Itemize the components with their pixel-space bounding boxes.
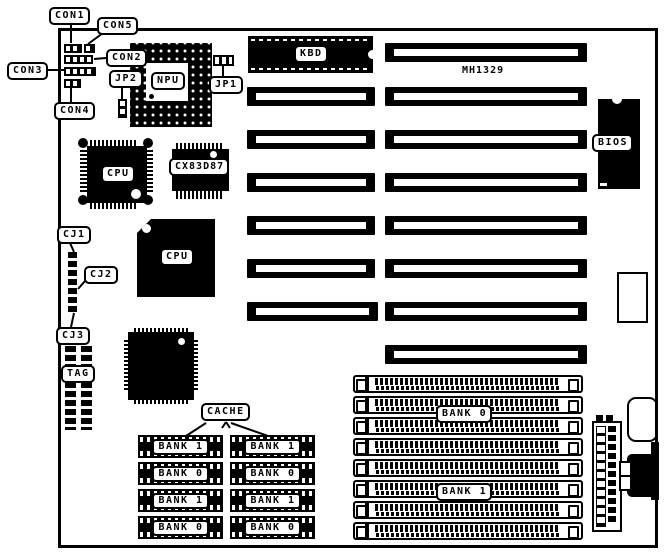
tag-socket-right [81,346,92,430]
pin1-mark [600,183,607,186]
con4-header [64,79,81,88]
simm-contacts [375,449,559,453]
simm-contacts [375,504,559,511]
cache-chip-label: BANK 1 [152,439,208,455]
simm-latch [356,442,367,455]
simm-socket [353,522,583,540]
simm-socket [353,459,583,477]
copro-pins-bottom [176,191,224,199]
con3-callout: CON3 [7,62,48,80]
isa-slot [247,259,375,278]
cache-chip: BANK 1 [138,489,223,512]
pin1-dot [210,151,217,158]
cj3-callout: CJ3 [56,327,90,345]
simm-contacts [375,441,559,448]
simm-latch [568,442,579,455]
bios-chip-label: BIOS [592,134,633,152]
cj-jumper-strip [68,252,77,313]
con2-header [64,55,93,64]
battery-outline [627,397,658,442]
power-pins-open [596,426,606,527]
simm-latch [568,505,579,518]
cpu-qfp-label: CPU [101,165,135,183]
con2-callout: CON2 [106,49,147,67]
chipset-body [128,332,194,400]
cache-chip-label: BANK 0 [152,466,208,482]
din-pin-stub [619,475,632,491]
simm-contacts [375,378,559,385]
simm-latch [356,463,367,476]
simm-bank1-label: BANK 1 [436,483,492,501]
simm-contacts [375,525,559,532]
cache-chip: BANK 1 [138,435,223,458]
simm-contacts [375,470,559,474]
simm-latch [568,484,579,497]
simm-latch [356,421,367,434]
cj1-callout: CJ1 [57,226,91,244]
kbd-notch [368,50,377,59]
isa-slot [385,259,587,278]
simm-contacts [375,462,559,469]
cache-chip-label: BANK 1 [244,439,300,455]
isa-slot [385,43,587,62]
simm-latch [356,400,367,413]
simm-latch [568,379,579,392]
pin1-dot [178,338,185,345]
cache-chip: BANK 1 [230,435,315,458]
isa-slot [385,173,587,192]
isa-slot [247,87,375,106]
power-pins-filled [608,426,616,525]
isa-slot [247,302,378,321]
isa-slot [247,173,375,192]
power-connector [592,421,622,532]
simm-contacts [375,386,559,390]
simm-socket [353,438,583,456]
cj2-callout: CJ2 [84,266,118,284]
cache-chip-label: BANK 0 [244,466,300,482]
tag-socket-left [65,346,76,430]
simm-latch [356,379,367,392]
simm-latch [568,463,579,476]
isa-slot [385,302,587,321]
simm-socket [353,375,583,393]
bios-notch [612,99,622,104]
cache-chip: BANK 0 [230,516,315,539]
con1-header [64,44,82,53]
npu-label: NPU [151,72,185,90]
cache-chip: BANK 1 [230,489,315,512]
isa-slot [247,130,375,149]
simm-bank0-label: BANK 0 [436,405,492,423]
socket-outline [617,272,648,323]
con1-callout: CON1 [49,7,90,25]
simm-socket [353,501,583,519]
con3-header [64,67,96,76]
jp2-callout: JP2 [109,70,143,88]
cache-chip-label: BANK 1 [244,493,300,509]
kbd-chip-label: KBD [294,45,328,63]
cache-chip-label: BANK 1 [152,493,208,509]
con5-header [84,44,95,53]
motherboard-diagram: MH1329 KBD NPU CPU CX83D87 CPU [0,0,665,553]
simm-latch [568,400,579,413]
simm-contacts [375,533,559,537]
tag-callout: TAG [61,365,95,383]
simm-latch [568,526,579,539]
cpu-plcc-label: CPU [160,248,194,266]
jp2-jumper [118,99,127,118]
simm-latch [356,526,367,539]
jp1-callout: JP1 [209,76,243,94]
cache-chip: BANK 0 [230,462,315,485]
cache-chip-label: BANK 0 [152,520,208,536]
con5-callout: CON5 [97,17,138,35]
board-model-text: MH1329 [462,65,504,76]
coprocessor-label: CX83D87 [169,158,229,176]
cache-callout: CACHE [201,403,250,421]
isa-slot [247,216,375,235]
pin1-dot [149,94,154,99]
simm-contacts [375,512,559,516]
simm-latch [356,505,367,518]
cache-chip-label: BANK 0 [244,520,300,536]
cache-chip: BANK 0 [138,516,223,539]
isa-slot [385,87,587,106]
con4-callout: CON4 [54,102,95,120]
simm-latch [568,421,579,434]
isa-slot [385,345,587,364]
cache-chip: BANK 0 [138,462,223,485]
simm-contacts [375,428,559,432]
isa-slot [385,130,587,149]
pin1-dot [131,189,141,199]
isa-slot [385,216,587,235]
jp1-jumper [213,55,234,66]
simm-latch [356,484,367,497]
